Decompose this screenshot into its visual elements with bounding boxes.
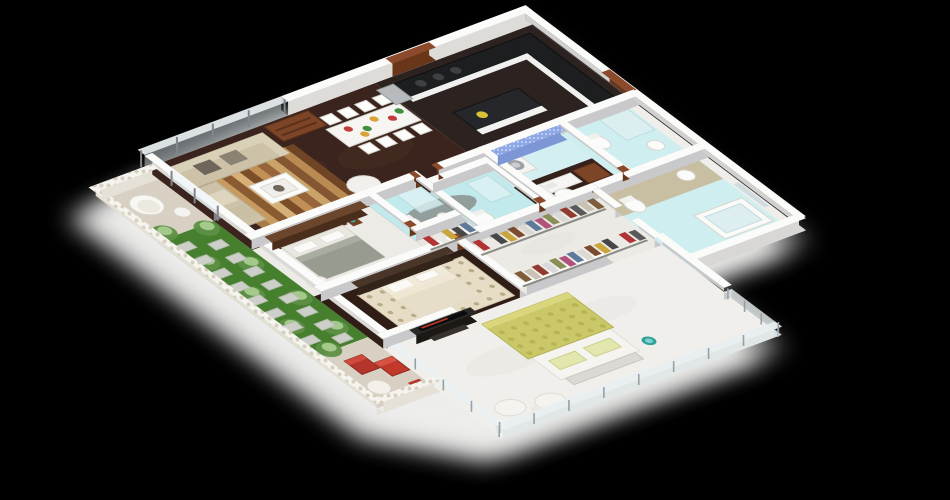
master-lounge-chair-1 bbox=[494, 399, 526, 416]
apartment-3d-floor-plan bbox=[0, 0, 950, 500]
render-canvas bbox=[0, 0, 950, 500]
